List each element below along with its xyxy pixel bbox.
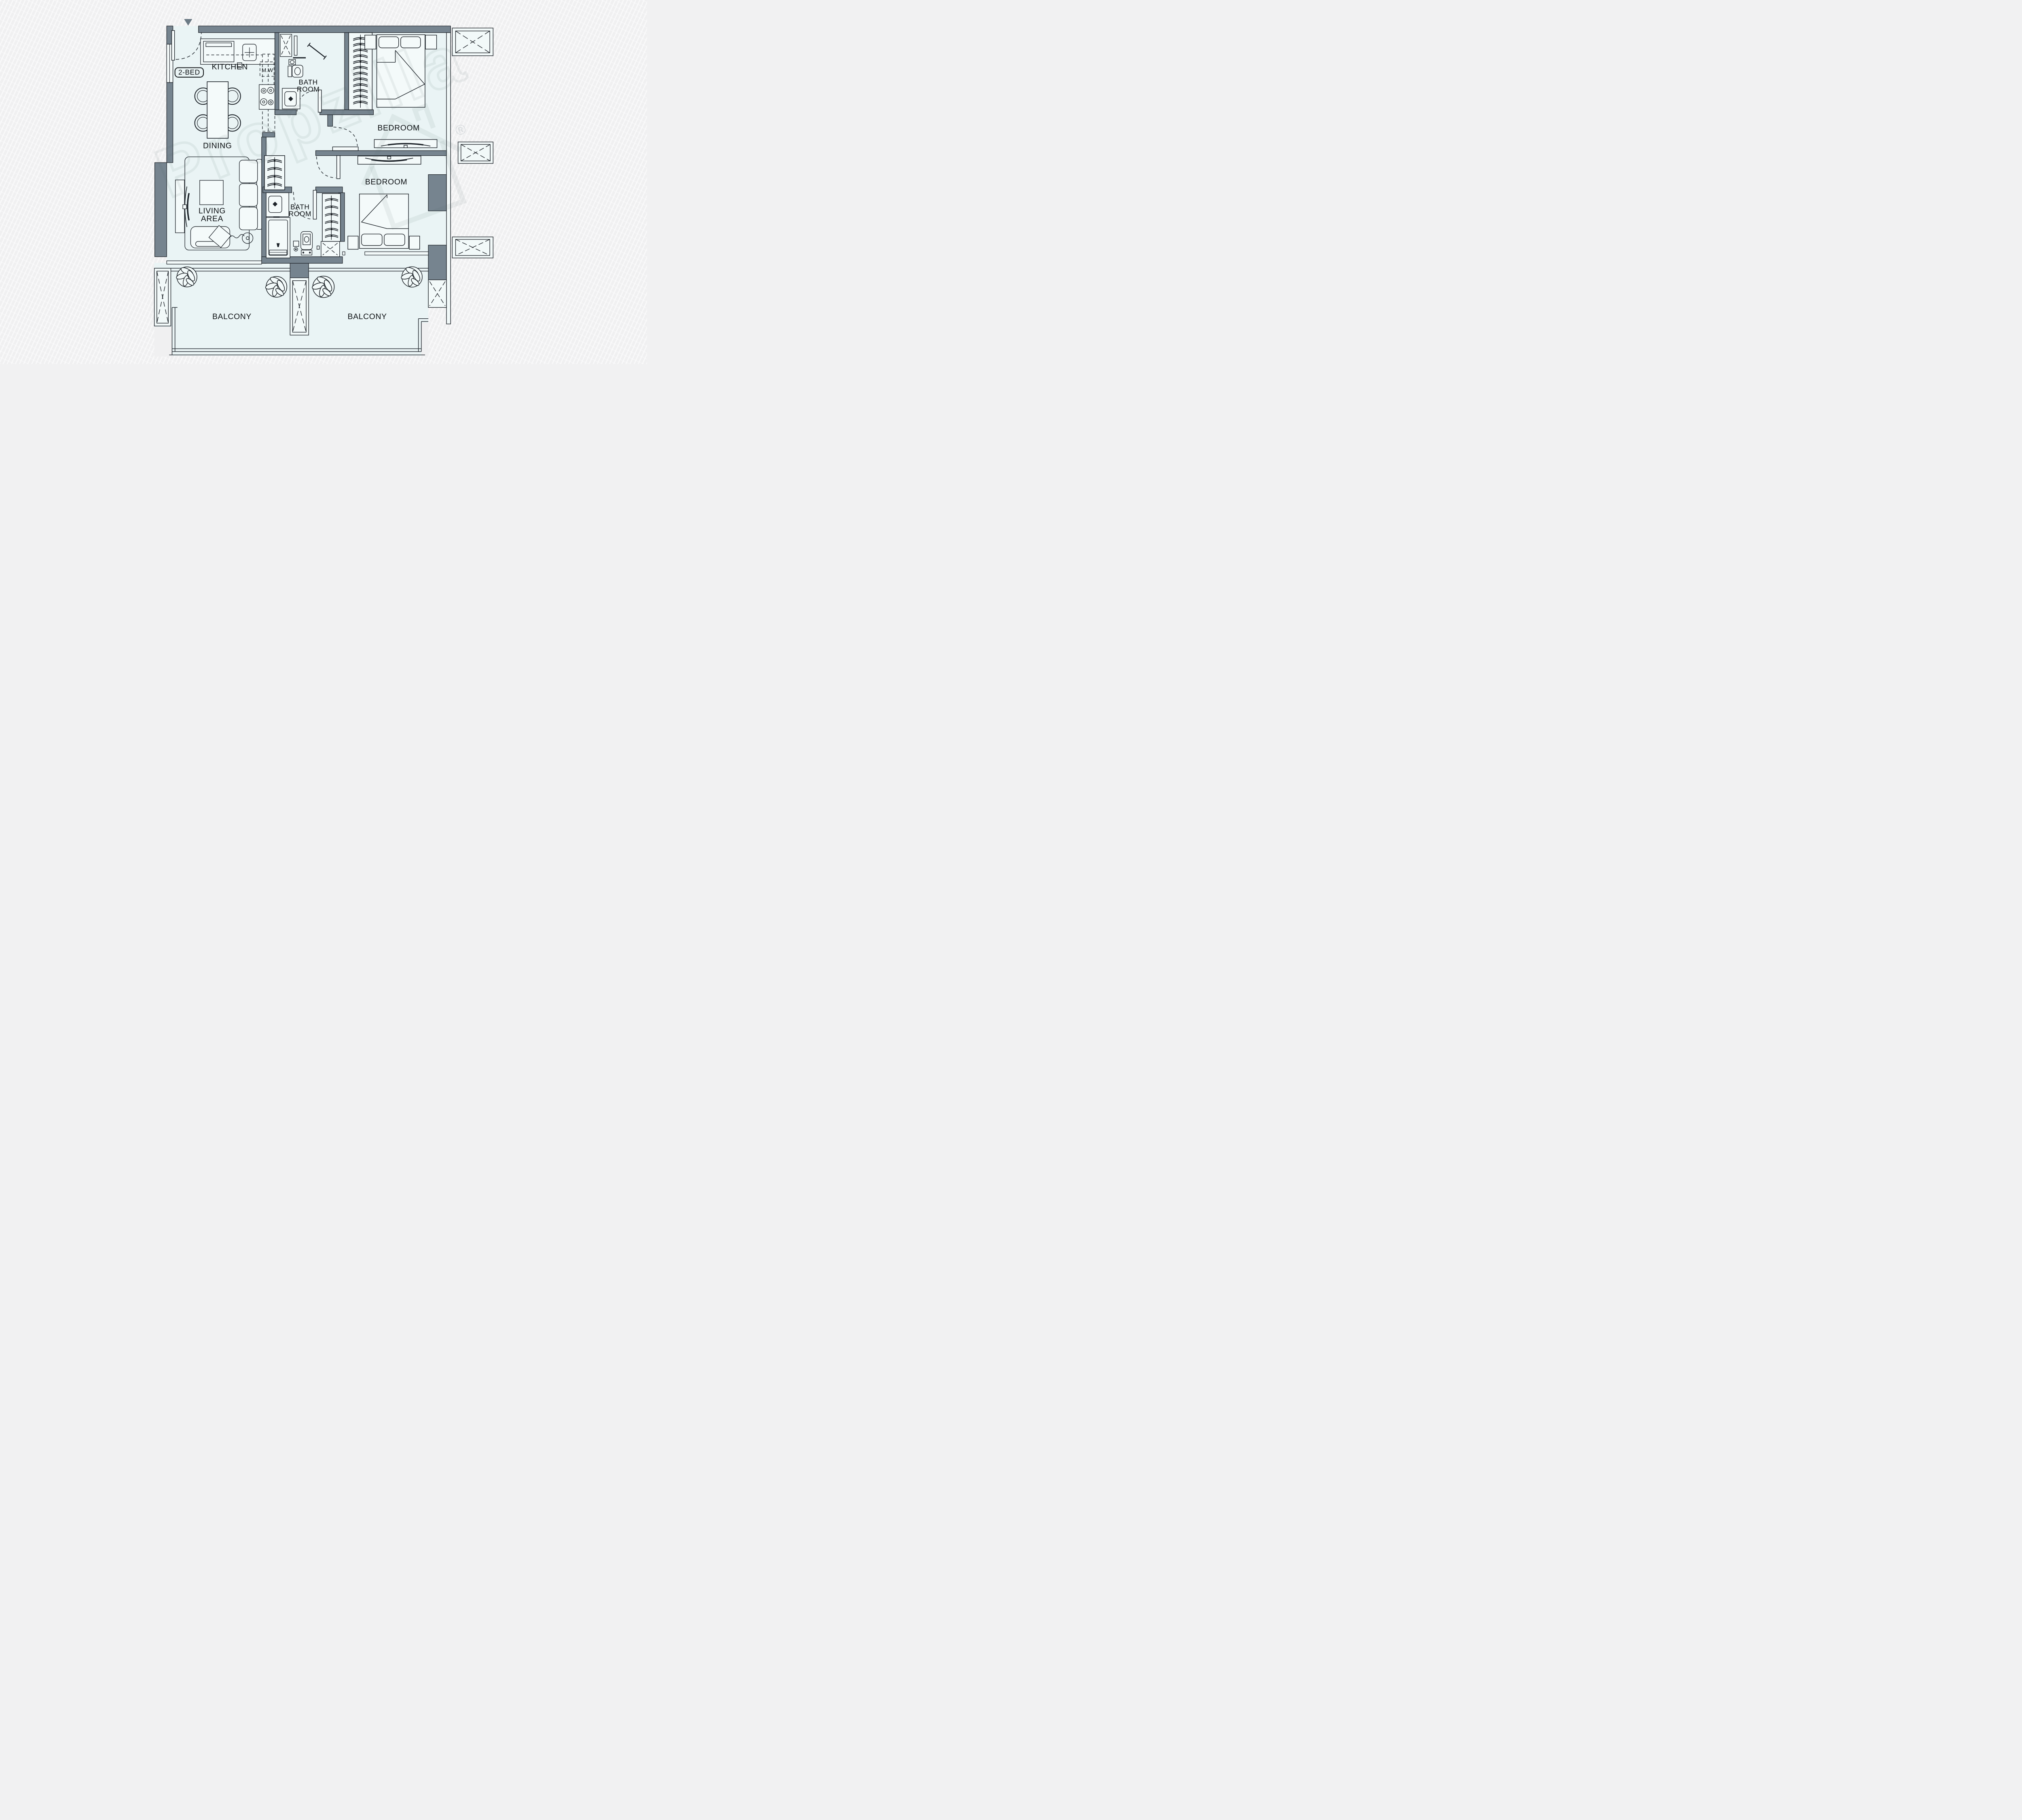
closet-hall: [264, 156, 285, 190]
shower-panel: [294, 36, 297, 55]
unit-type-badge: 2-BED: [175, 67, 204, 78]
label-bathroom-mid-line2: ROOM: [289, 210, 311, 217]
label-bathroom-top: BATH ROOM: [297, 79, 319, 93]
basin-top: [289, 59, 295, 65]
entry-marker-icon: [184, 19, 192, 25]
wall-column-right-2: [428, 245, 446, 280]
ledge-top-right: [452, 28, 493, 55]
label-bathroom-top-line1: BATH: [297, 79, 319, 86]
wall-column-balcony: [290, 263, 309, 278]
wall-top: [199, 26, 451, 32]
label-bedroom-mid: BEDROOM: [365, 178, 407, 187]
label-balcony-left: BALCONY: [212, 312, 252, 321]
wall-bedroom2-balcony-b: [365, 252, 428, 255]
label-bedroom-top: BEDROOM: [377, 124, 419, 133]
basin-mid: [294, 241, 299, 251]
wall-bath-closet: [345, 33, 349, 110]
label-kitchen: KITCHEN: [212, 63, 248, 72]
label-balcony-right: BALCONY: [348, 312, 387, 321]
watermark-house-icon: [349, 97, 473, 234]
nightstand: [409, 236, 420, 250]
label-bathroom-top-line2: ROOM: [297, 86, 319, 93]
ottoman: [190, 225, 231, 248]
label-bathroom-mid-line1: BATH: [289, 203, 311, 210]
pillow: [384, 234, 405, 246]
dining-table: [207, 82, 228, 138]
wall-living-balcony-glass: [167, 261, 262, 264]
sofa: [239, 159, 262, 230]
pillow: [379, 37, 399, 48]
pillow: [401, 37, 421, 48]
closet-bath-mid: [322, 194, 341, 241]
wall-kitchen-end: [262, 133, 275, 137]
label-living-line2: AREA: [199, 215, 226, 223]
stove: [259, 85, 275, 109]
wall-left-mid: [167, 83, 173, 163]
bathtub: [266, 218, 290, 258]
bidet-spray: [317, 246, 319, 249]
planter-mid: [290, 278, 309, 335]
wall-bath-bottom-left: [275, 110, 296, 114]
ledge-bottom-right: [428, 280, 446, 307]
planter-left: [154, 268, 171, 326]
coffee-table: [200, 180, 223, 205]
toilet-mid: [301, 231, 313, 255]
label-microwave: M.W: [262, 67, 273, 73]
pillow: [362, 234, 382, 246]
wall-left-pillar: [155, 163, 167, 257]
nightstand: [365, 35, 376, 49]
wall-kitchen-bath: [275, 33, 279, 110]
wall-bedroom2-balcony-a: [343, 252, 345, 255]
wall-corridor-stub: [328, 115, 332, 127]
floor-plan-drawing: [0, 0, 647, 364]
vanity-mid: [266, 193, 289, 217]
shower-mid: [321, 241, 340, 257]
label-bathroom-mid: BATH ROOM: [289, 203, 311, 218]
floor-plan-canvas: Propzilla ® 2-BED KITCHEN M.W BATH ROOM …: [0, 0, 647, 364]
nightstand: [425, 35, 437, 49]
label-living-line1: LIVING: [199, 207, 226, 215]
nightstand: [348, 236, 358, 250]
label-living-area: LIVING AREA: [199, 207, 226, 223]
toilet-top: [288, 65, 303, 77]
wall-bath2-top-right: [316, 187, 343, 193]
label-dining: DINING: [203, 142, 232, 150]
cabinet-handle: [206, 43, 231, 47]
ledge-low-right: [452, 237, 493, 258]
